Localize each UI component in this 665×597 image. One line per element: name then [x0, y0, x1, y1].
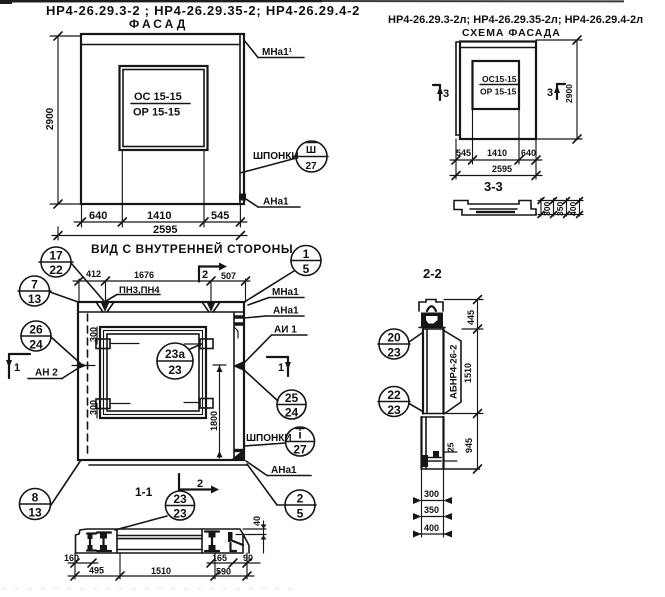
svg-text:23: 23 [168, 363, 182, 377]
svg-text:АНа1: АНа1 [273, 306, 299, 317]
svg-text:АБНР4-26-2: АБНР4-26-2 [449, 345, 460, 399]
svg-text:ОС 15-15: ОС 15-15 [134, 91, 182, 103]
svg-text:495: 495 [89, 566, 104, 576]
svg-text:1: 1 [14, 362, 20, 374]
svg-text:507: 507 [221, 271, 236, 281]
svg-text:22: 22 [387, 388, 401, 402]
svg-text:8: 8 [32, 491, 39, 505]
svg-text:13: 13 [28, 292, 42, 306]
svg-text:ВИД С ВНУТРЕННЕЙ СТОРОНЫ: ВИД С ВНУТРЕННЕЙ СТОРОНЫ [91, 241, 293, 256]
svg-text:590: 590 [216, 567, 231, 577]
svg-text:1: 1 [303, 247, 310, 261]
svg-text:445: 445 [466, 310, 476, 325]
svg-text:СХЕМА ФАСАДА: СХЕМА ФАСАДА [462, 27, 561, 39]
svg-text:300: 300 [542, 202, 552, 216]
svg-text:17: 17 [49, 249, 63, 263]
svg-text:545: 545 [456, 148, 471, 158]
svg-text:350: 350 [555, 202, 565, 216]
svg-text:2595: 2595 [492, 164, 512, 174]
svg-text:АН 2: АН 2 [35, 368, 58, 379]
svg-text:27: 27 [293, 443, 307, 457]
svg-text:23: 23 [387, 346, 401, 360]
svg-text:26: 26 [29, 323, 43, 337]
svg-text:НР4-26.29.3-2 ; НР4-26.29.35-: НР4-26.29.3-2 ; НР4-26.29.35-2; НР4-26.2… [46, 3, 360, 18]
svg-text:1410: 1410 [147, 210, 171, 222]
svg-text:5: 5 [303, 262, 310, 276]
svg-text:1-1: 1-1 [135, 485, 153, 499]
svg-text:ОР 15-15: ОР 15-15 [133, 107, 180, 119]
svg-text:90: 90 [243, 553, 253, 563]
svg-text:i: i [298, 428, 301, 442]
svg-text:24: 24 [29, 338, 43, 352]
svg-text:Ш: Ш [306, 145, 316, 156]
svg-text:25: 25 [285, 391, 299, 405]
svg-text:2: 2 [297, 492, 304, 506]
svg-text:АИ 1: АИ 1 [274, 325, 297, 336]
svg-text:945: 945 [464, 438, 474, 453]
svg-text:300: 300 [424, 489, 439, 499]
svg-text:3: 3 [547, 87, 553, 99]
svg-text:2900: 2900 [45, 107, 56, 130]
svg-text:1676: 1676 [134, 270, 154, 280]
svg-text:545: 545 [211, 210, 229, 222]
svg-text:ШПОНКИ: ШПОНКИ [253, 151, 299, 162]
svg-text:ОР 15-15: ОР 15-15 [480, 87, 517, 97]
svg-text:2: 2 [202, 269, 208, 281]
svg-text:МНа1: МНа1 [272, 287, 299, 298]
svg-text:1410: 1410 [487, 148, 507, 158]
svg-text:40: 40 [252, 516, 262, 526]
svg-text:640: 640 [89, 210, 107, 222]
svg-text:22: 22 [49, 263, 63, 277]
svg-text:ОС15-15: ОС15-15 [482, 74, 517, 84]
svg-text:165: 165 [212, 553, 227, 563]
svg-text:400: 400 [424, 523, 439, 533]
svg-text:1: 1 [278, 362, 284, 374]
svg-text:1800: 1800 [209, 411, 219, 431]
svg-text:412: 412 [86, 269, 101, 279]
svg-text:23а: 23а [165, 347, 185, 361]
svg-text:300: 300 [89, 327, 99, 342]
svg-text:2: 2 [197, 478, 203, 490]
svg-text:МНа1¹: МНа1¹ [262, 47, 293, 58]
svg-text:300: 300 [89, 400, 99, 415]
svg-text:13: 13 [28, 506, 42, 520]
svg-text:ФАСАД: ФАСАД [129, 17, 188, 31]
svg-text:АНа1: АНа1 [271, 465, 297, 476]
svg-text:400: 400 [568, 202, 578, 216]
svg-text:350: 350 [424, 505, 439, 515]
svg-text:160: 160 [64, 553, 79, 563]
svg-text:23: 23 [387, 403, 401, 417]
svg-text:3: 3 [443, 88, 449, 100]
svg-text:20: 20 [387, 331, 401, 345]
svg-text:2595: 2595 [153, 224, 177, 236]
svg-text:2-2: 2-2 [423, 266, 442, 281]
svg-text:27: 27 [305, 161, 317, 172]
svg-text:24: 24 [285, 406, 299, 420]
svg-text:7: 7 [31, 278, 38, 292]
svg-text:23: 23 [173, 492, 187, 506]
svg-text:5: 5 [297, 507, 304, 521]
svg-text:2900: 2900 [564, 84, 574, 103]
svg-text:640: 640 [521, 148, 536, 158]
svg-text:АНа1: АНа1 [263, 197, 289, 208]
svg-text:23: 23 [173, 507, 187, 521]
svg-text:25: 25 [446, 442, 456, 452]
svg-text:3-3: 3-3 [484, 179, 503, 194]
svg-text:НР4-26.29.3-2л; НР4-26.29.35-2: НР4-26.29.3-2л; НР4-26.29.35-2л; НР4-26.… [388, 14, 643, 26]
svg-text:1510: 1510 [151, 566, 171, 576]
svg-text:1510: 1510 [463, 363, 473, 383]
